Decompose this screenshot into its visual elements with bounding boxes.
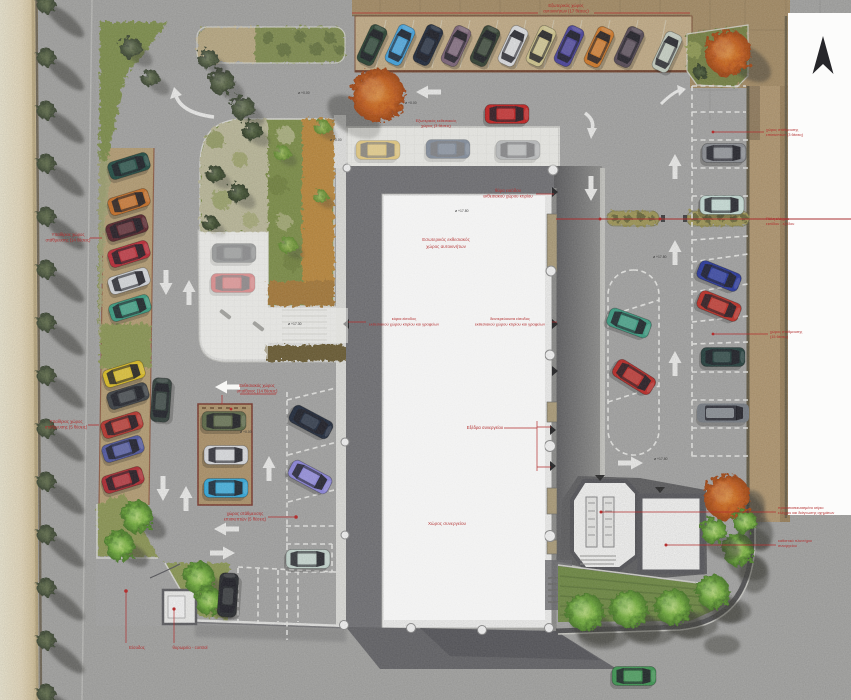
svg-text:Είσοδος: Είσοδος xyxy=(129,645,145,650)
svg-text:Υπαίθριος χώρος: Υπαίθριος χώρος xyxy=(49,419,82,424)
svg-text:(15 θέσεις): (15 θέσεις) xyxy=(770,335,789,339)
svg-text:δευτερεύουσα είσοδος: δευτερεύουσα είσοδος xyxy=(490,316,530,321)
svg-text:ø +0.00: ø +0.00 xyxy=(232,98,244,102)
svg-text:ø +0.00: ø +0.00 xyxy=(298,91,310,95)
svg-text:ø +17.80: ø +17.80 xyxy=(653,255,667,259)
svg-text:ø +17.80: ø +17.80 xyxy=(455,209,469,213)
svg-text:εκθεσιακού χώρου κτιρίου και γ: εκθεσιακού χώρου κτιρίου και γραφείων xyxy=(475,322,545,327)
svg-text:εκθεσιακού χώρου κτιρίου και γ: εκθεσιακού χώρου κτιρίου και γραφείων xyxy=(369,322,439,327)
svg-text:ø +0.00: ø +0.00 xyxy=(330,138,342,142)
svg-text:ελέγχου και διάγνωσης οχημάτων: ελέγχου και διάγνωσης οχημάτων xyxy=(778,511,834,515)
svg-text:προκατασκευασμένο κτίριο: προκατασκευασμένο κτίριο xyxy=(778,506,823,510)
svg-text:χώρος στάθμευσης: χώρος στάθμευσης xyxy=(227,511,264,516)
svg-text:αυτοκινήτων (17 θέσεις): αυτοκινήτων (17 θέσεις) xyxy=(543,9,589,14)
svg-text:εκθεσιακού χώρου κτιρίου: εκθεσιακού χώρου κτιρίου xyxy=(483,194,533,199)
svg-text:στάθμευσης (5 θέσεις): στάθμευσης (5 θέσεις) xyxy=(45,425,88,430)
svg-text:ø +0.00: ø +0.00 xyxy=(240,430,252,434)
svg-text:Υπαίθριος χώρος: Υπαίθριος χώρος xyxy=(51,232,84,237)
svg-text:υπαίθριος (14 θέσεις): υπαίθριος (14 θέσεις) xyxy=(237,389,278,394)
svg-text:ø +17.30: ø +17.30 xyxy=(288,322,302,326)
svg-text:καθιστικό πλυντήριο: καθιστικό πλυντήριο xyxy=(778,539,812,543)
svg-text:επισκεπτών (5 θέσεις): επισκεπτών (5 θέσεις) xyxy=(224,517,267,522)
svg-text:κύρια είσοδος: κύρια είσοδος xyxy=(392,316,417,321)
svg-text:ø +17.80: ø +17.80 xyxy=(654,457,668,461)
svg-text:θύρα εισόδου: θύρα εισόδου xyxy=(495,188,522,193)
svg-text:Εξέδρα συνεργείου: Εξέδρα συνεργείου xyxy=(467,425,504,430)
svg-text:χώρος στάθμευσης: χώρος στάθμευσης xyxy=(766,128,799,132)
svg-text:χώρος αυτοκινήτων: χώρος αυτοκινήτων xyxy=(426,243,467,249)
svg-text:χώρος στάθμευσης: χώρος στάθμευσης xyxy=(770,330,803,334)
svg-text:εισόδου - εξόδου: εισόδου - εξόδου xyxy=(766,222,794,226)
svg-text:θυρωρείο - control: θυρωρείο - control xyxy=(173,645,208,650)
svg-text:Εσωτερικός εκθεσιακός: Εσωτερικός εκθεσιακός xyxy=(422,236,470,242)
svg-text:Εκθεσιακός χώρος: Εκθεσιακός χώρος xyxy=(239,383,275,388)
svg-text:ø +0.00: ø +0.00 xyxy=(405,101,417,105)
svg-text:Χώρος συνεργείου: Χώρος συνεργείου xyxy=(428,520,467,526)
svg-text:Εξωτερικός χώρος: Εξωτερικός χώρος xyxy=(548,3,583,8)
svg-text:επισκεπτών (3 θέσεις): επισκεπτών (3 θέσεις) xyxy=(766,133,804,137)
svg-text:χώρος (3 θέσεις): χώρος (3 θέσεις) xyxy=(421,123,451,128)
svg-text:στάθμευσης (14 θέσεις): στάθμευσης (14 θέσεις) xyxy=(46,238,92,243)
svg-text:συνεργείου: συνεργείου xyxy=(778,544,797,548)
